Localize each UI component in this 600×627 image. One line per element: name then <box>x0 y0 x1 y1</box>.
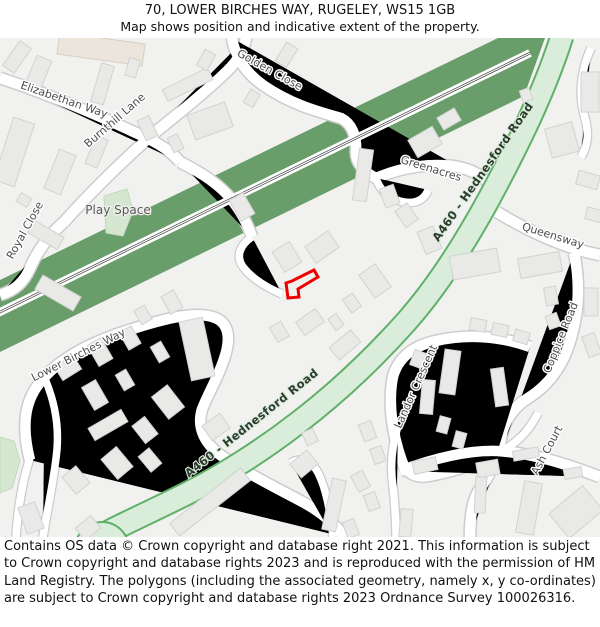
page-title: 70, LOWER BIRCHES WAY, RUGELEY, WS15 1GB <box>0 0 600 19</box>
building <box>581 72 599 112</box>
label-play-space: Play Space <box>85 203 150 217</box>
building <box>544 286 559 306</box>
building <box>491 322 509 337</box>
building <box>476 459 500 478</box>
building <box>399 509 413 537</box>
header: 70, LOWER BIRCHES WAY, RUGELEY, WS15 1GB… <box>0 0 600 38</box>
footer-copyright: Contains OS data © Crown copyright and d… <box>0 537 600 627</box>
page-subtitle: Map shows position and indicative extent… <box>0 19 600 35</box>
map-canvas[interactable]: Elizabethan Way Golden Close Burnthill L… <box>0 38 600 537</box>
building <box>584 288 598 316</box>
map-container[interactable]: Elizabethan Way Golden Close Burnthill L… <box>0 38 600 537</box>
building <box>474 477 487 514</box>
building <box>469 318 487 333</box>
